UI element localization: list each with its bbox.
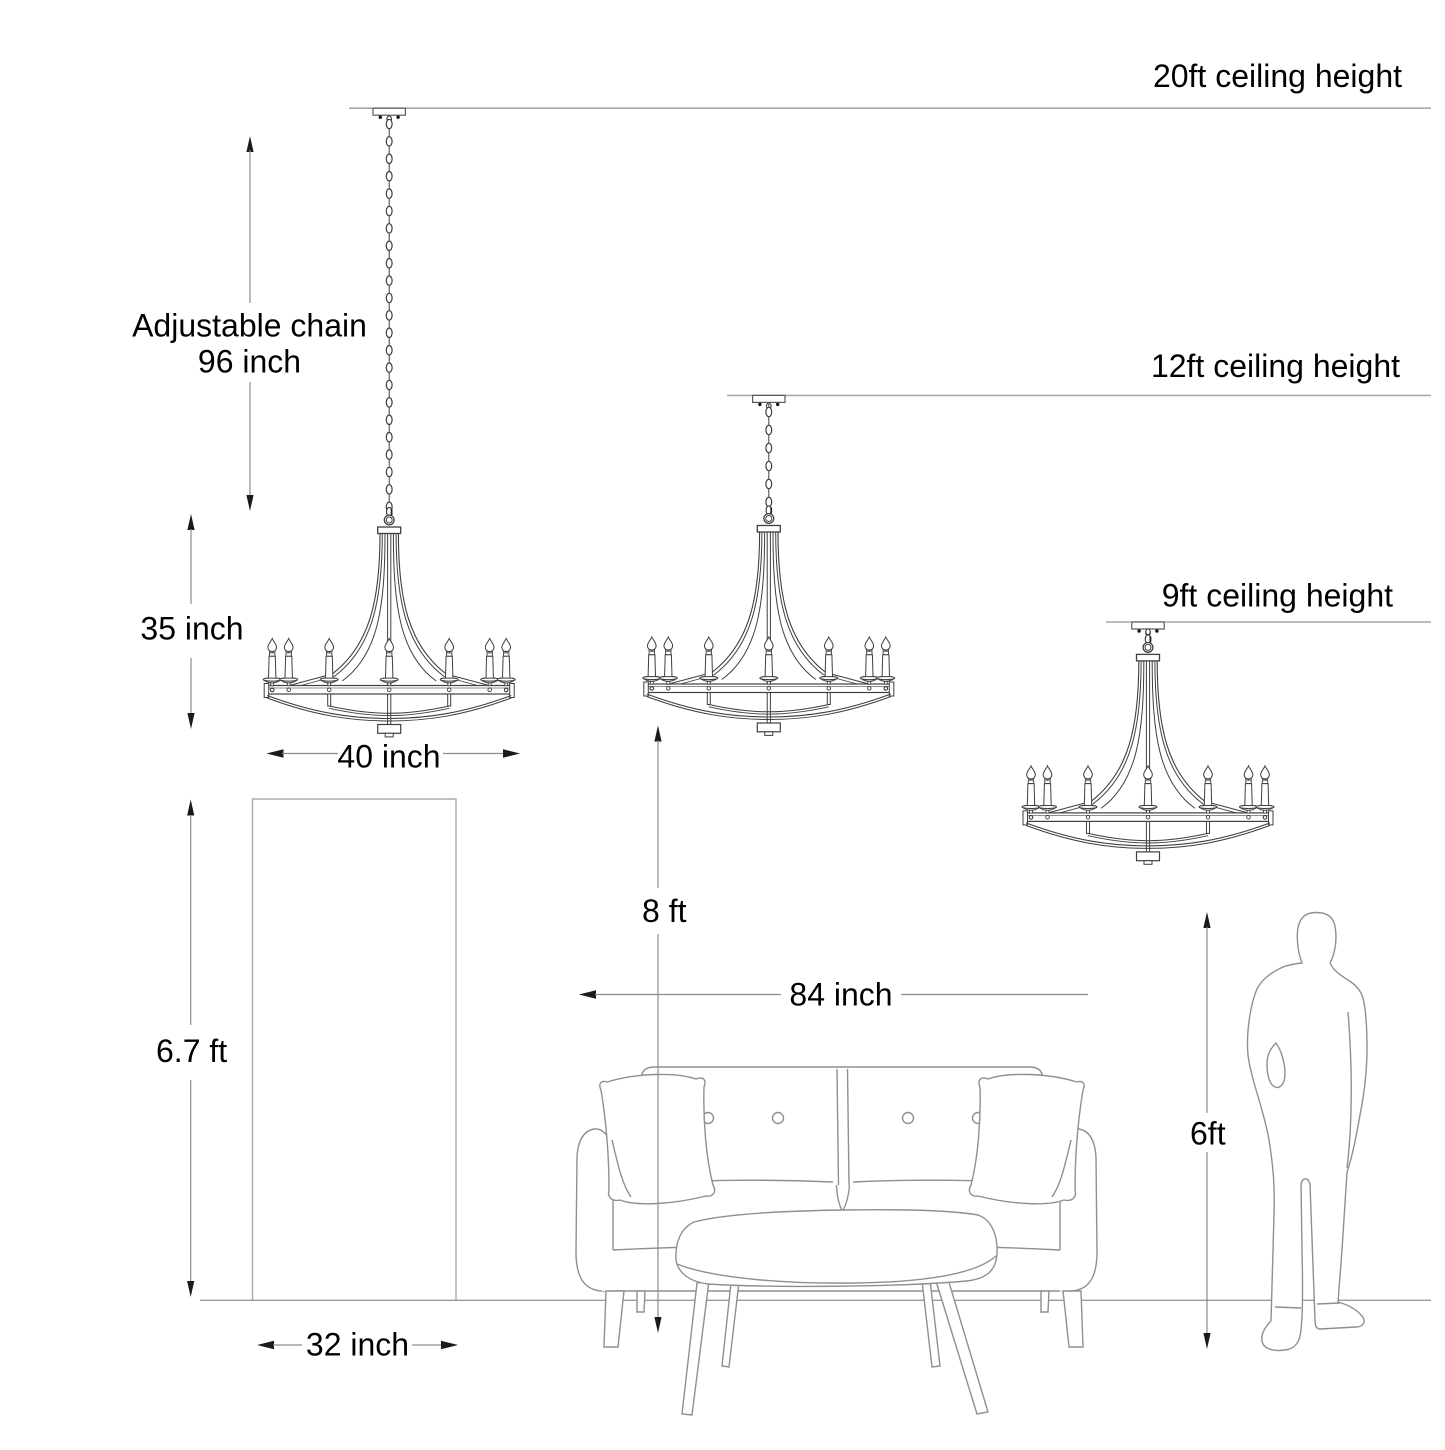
svg-text:6ft: 6ft bbox=[1190, 1116, 1226, 1152]
svg-text:84 inch: 84 inch bbox=[789, 977, 892, 1013]
svg-text:35 inch: 35 inch bbox=[140, 611, 243, 647]
svg-text:96 inch: 96 inch bbox=[198, 344, 301, 380]
svg-text:8 ft: 8 ft bbox=[642, 893, 687, 929]
svg-text:9ft ceiling height: 9ft ceiling height bbox=[1162, 578, 1393, 614]
svg-text:32 inch: 32 inch bbox=[306, 1327, 409, 1363]
svg-text:Adjustable chain: Adjustable chain bbox=[132, 308, 367, 344]
svg-text:12ft ceiling height: 12ft ceiling height bbox=[1151, 348, 1400, 384]
svg-text:6.7 ft: 6.7 ft bbox=[156, 1033, 227, 1069]
svg-text:20ft ceiling height: 20ft ceiling height bbox=[1153, 58, 1402, 94]
svg-text:40 inch: 40 inch bbox=[337, 739, 440, 775]
